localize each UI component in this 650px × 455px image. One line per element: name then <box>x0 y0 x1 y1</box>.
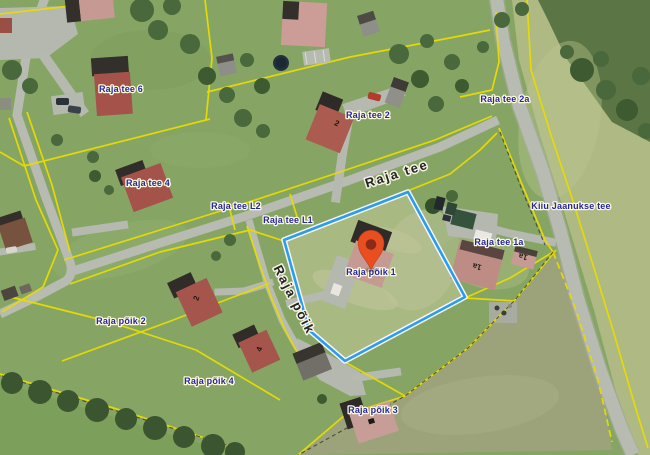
parcel-label-raja-tee-1a: Raja tee 1a <box>474 237 524 247</box>
orthophoto-map[interactable]: 2 1a 1a 2 4 Raja tee Raja põik Raja tee … <box>0 0 650 455</box>
parcel-label-raja-tee-6: Raja tee 6 <box>99 84 143 94</box>
parcel-label-raja-tee-l2: Raja tee L2 <box>211 201 261 211</box>
marker-pin-inner-circle <box>366 239 377 250</box>
parcel-label-raja-poik-4: Raja põik 4 <box>184 376 234 386</box>
trampoline <box>273 55 289 71</box>
parcel-label-raja-tee-2a: Raja tee 2a <box>480 94 530 104</box>
parcel-label-raja-tee-l1: Raja tee L1 <box>263 215 313 225</box>
parcel-label-raja-poik-3: Raja põik 3 <box>348 405 398 415</box>
parcel-label-kiiu-jaanukse-tee: Kiiu Jaanukse tee <box>531 201 610 211</box>
parcel-label-raja-tee-4: Raja tee 4 <box>126 178 170 188</box>
building-top-middle <box>281 1 327 47</box>
parcel-label-raja-tee-2: Raja tee 2 <box>346 110 390 120</box>
building-left-edge <box>0 18 12 33</box>
map-canvas[interactable]: 2 1a 1a 2 4 Raja tee Raja põik Raja tee … <box>0 0 650 455</box>
parcel-label-raja-poik-2: Raja põik 2 <box>96 316 146 326</box>
building-left-edge-2 <box>0 98 11 110</box>
